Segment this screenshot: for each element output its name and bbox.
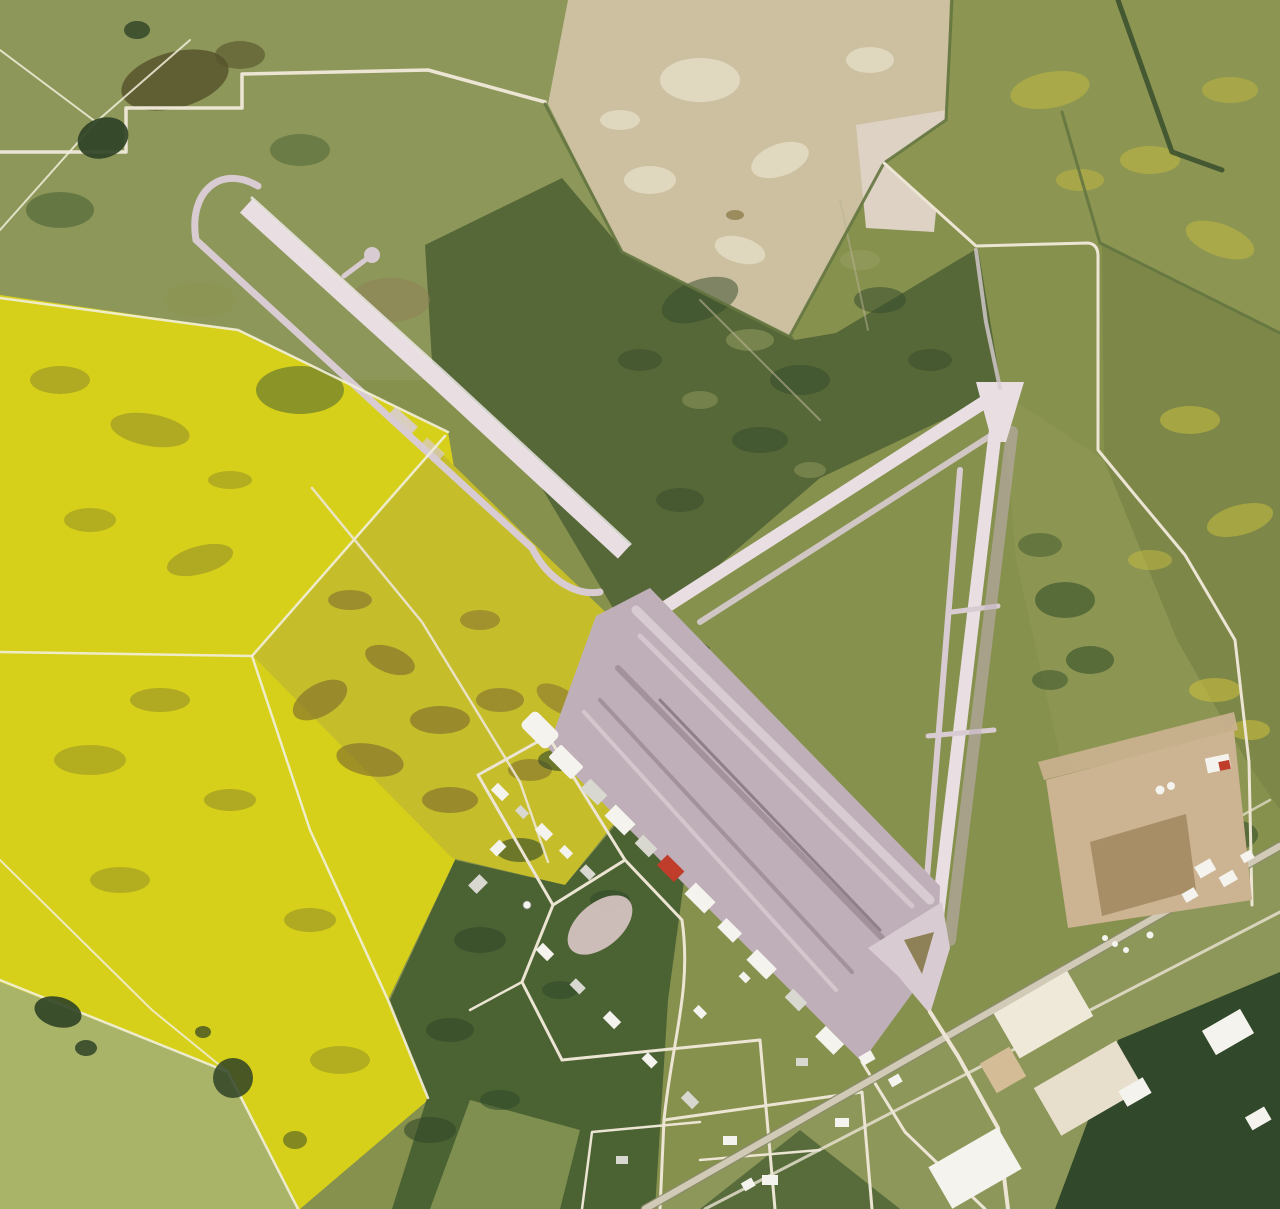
runway-stub-pad bbox=[364, 247, 380, 263]
tree-clump bbox=[283, 1131, 307, 1149]
pond bbox=[75, 1040, 97, 1056]
vehicle-dot bbox=[1112, 941, 1118, 947]
base-building bbox=[723, 1136, 737, 1145]
tree-clump bbox=[195, 1026, 211, 1038]
base-building bbox=[835, 1118, 849, 1127]
vehicle-dot bbox=[1102, 935, 1108, 941]
pond bbox=[124, 21, 150, 39]
storage-tank bbox=[1167, 782, 1175, 790]
water-tower bbox=[523, 901, 531, 909]
base-building bbox=[616, 1156, 628, 1164]
aerial-photo bbox=[0, 0, 1280, 1209]
vehicle-dot bbox=[1123, 947, 1129, 953]
base-building bbox=[796, 1058, 808, 1066]
airfield-aerial-image bbox=[0, 0, 1280, 1209]
vehicle-dot bbox=[1147, 932, 1154, 939]
base-building bbox=[762, 1175, 778, 1185]
storage-tank bbox=[1156, 786, 1165, 795]
tree-clump bbox=[213, 1058, 253, 1098]
